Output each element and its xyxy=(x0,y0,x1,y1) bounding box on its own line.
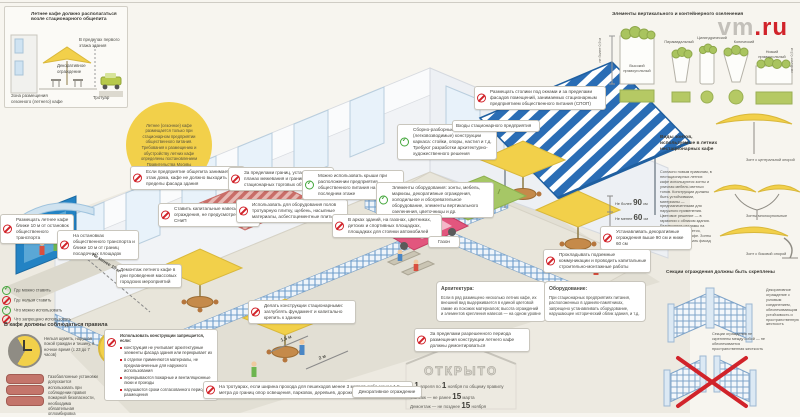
prohibition-icon xyxy=(477,93,486,102)
restrictions-header: Использовать конструкции запрещается, ес… xyxy=(120,333,214,344)
planter-label: Высокий прямоугольный xyxy=(621,64,653,74)
rule-noise-text: Нельзя шуметь, нарушая покой граждан и т… xyxy=(44,336,98,357)
prohibition-icon xyxy=(251,307,260,316)
prohibition-icon xyxy=(546,256,555,265)
panel-fences-title: Секции ограждения должны быть скреплены xyxy=(666,270,796,276)
clock-icon xyxy=(8,334,42,368)
callout-arches-lawns: В арках зданий, на газонах, цветниках, д… xyxy=(332,214,442,238)
open-sign-line3: Демонтаж — не позднее 15 ноября xyxy=(410,401,514,410)
check-icon xyxy=(379,195,388,204)
gas-cylinder-icon xyxy=(6,385,44,395)
prohibition-icon xyxy=(335,221,344,230)
label-cafe-zone: Зона размещения сезонного (летнего) кафе xyxy=(11,93,63,104)
label-first-floor: В пределах первого этажа здания xyxy=(79,37,125,48)
open-sign-line2: Монтаж — не ранее 15 марта xyxy=(410,392,514,401)
umbrella-type-label: Зонты многокупольные xyxy=(746,214,796,219)
architecture-text: Если в ряд размещено несколько летних ка… xyxy=(441,295,541,317)
open-sign-line1: С 1 апреля по 1 ноября по общему правилу xyxy=(410,381,514,390)
architecture-box: Архитектура: Если в ряд размещено нескол… xyxy=(436,281,546,322)
label-sidewalk: Тротуар xyxy=(93,95,119,101)
label-entrances: Входы стационарного предприятия xyxy=(452,120,540,132)
callout-equipment-allowed: Элементы оборудования: зонты, мебель, ма… xyxy=(376,182,494,218)
panel-location-title: Летнее кафе должно располагаться возле с… xyxy=(31,12,123,22)
umbrella-types-figures xyxy=(712,108,800,260)
legend-item-forbidden-place: Где нельзя ставить xyxy=(2,296,51,305)
label-lawn: Газон xyxy=(428,236,460,248)
callout-construction-restrictions: Использовать конструкции запрещается, ес… xyxy=(104,329,218,401)
dim-60cm: Не менее 60 см xyxy=(615,213,648,222)
logo-gray: vm xyxy=(718,14,755,41)
restriction-item: перекрываются пожарные и вентиляционные … xyxy=(120,375,214,386)
rule-gas-text: Газобаллонные установки допускается испо… xyxy=(48,374,98,417)
callout-dismantle-events: Демонтаж летнего кафе в дни проведения м… xyxy=(116,264,182,288)
gas-cylinder-icon xyxy=(6,374,44,384)
fence-wrong xyxy=(664,356,756,406)
callout-underground-works: Прокладывать подземные коммуникации и пр… xyxy=(543,249,651,273)
check-icon xyxy=(2,306,11,315)
prohibition-icon xyxy=(206,385,215,394)
prohibition-icon xyxy=(231,174,240,183)
prohibition-icon xyxy=(60,240,69,249)
check-icon xyxy=(400,137,409,146)
check-icon xyxy=(2,286,11,295)
callout-tables-facade: Размещать столики под окнами и за предел… xyxy=(474,86,606,110)
prohibition-icon xyxy=(3,224,12,233)
label-fence-caption: Декоративное ограждение xyxy=(352,386,422,398)
fence-note-bad: Секции ограждения не скреплены между соб… xyxy=(712,332,770,352)
prohibition-icon xyxy=(2,296,11,305)
prohibition-icon xyxy=(417,335,426,344)
restriction-item: нарушаются сроки согласованного периода … xyxy=(120,387,214,398)
check-icon xyxy=(305,180,314,189)
architecture-title: Архитектура: xyxy=(441,286,541,293)
panel-umbrellas-title: Виды зонтов, используемые в летних неста… xyxy=(660,135,718,153)
prohibition-icon xyxy=(161,210,170,219)
intro-text: Летнее (сезонное) кафе размещается тольк… xyxy=(126,123,212,167)
prohibition-icon xyxy=(239,206,248,215)
callout-season-dismantle: За пределами разрешенного периода размещ… xyxy=(414,328,530,352)
gas-cylinder-icon xyxy=(6,396,44,406)
restriction-item: конструкция не учитывает архитектурные э… xyxy=(120,345,214,356)
label-decorative-fence: Декоративное ограждение xyxy=(57,63,91,74)
umbrella-type-label: Зонт с боковой опорой xyxy=(746,252,798,257)
equipment-box: Оборудование: При стационарных предприят… xyxy=(544,281,646,322)
fence-note-ok: Декоративное ограждение с узловым соедин… xyxy=(766,288,798,327)
legend-item-allowed-place: Где можно ставить xyxy=(2,286,51,295)
equipment-title: Оборудование: xyxy=(549,286,641,293)
panel-location: Летнее кафе должно располагаться возле с… xyxy=(4,6,128,108)
planter-label: Низкий прямоугольный xyxy=(752,50,792,60)
callout-fence-height: Устанавливать декоративные ограждения вы… xyxy=(600,226,692,250)
dim-90cm: Не более 90 см xyxy=(615,198,648,207)
open-sign-word: ОТКРЫТО xyxy=(404,364,518,378)
prohibition-icon xyxy=(107,338,116,347)
prohibition-icon xyxy=(603,233,612,242)
rules-title: В кафе должны соблюдаться правила xyxy=(4,322,144,328)
legend-item-allowed-use: Что можно использовать xyxy=(2,306,62,315)
callout-stationary-structures: Делать конструкции стационарными: заглуб… xyxy=(248,300,356,324)
umbrella-type-label: Зонт с центральной опорой xyxy=(746,158,796,163)
planter-label: Пирамидальный xyxy=(664,40,694,45)
logo-red: .ru xyxy=(754,14,788,41)
equipment-text: При стационарных предприятиях питания, р… xyxy=(549,295,641,317)
vmru-logo[interactable]: vm.ru xyxy=(718,14,788,42)
restriction-item: в отделке применяются материалы, не пред… xyxy=(120,357,214,373)
prohibition-icon xyxy=(133,173,142,182)
infographic-canvas: Летнее кафе должно располагаться возле с… xyxy=(0,0,800,413)
planters-dim-left: не более 0,9 м xyxy=(598,38,602,63)
